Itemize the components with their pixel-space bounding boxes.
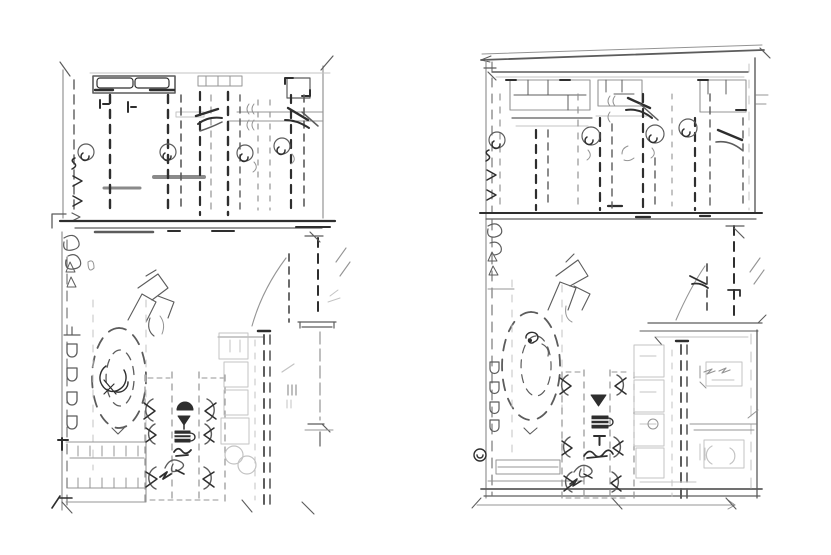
floor-plan-left bbox=[52, 56, 350, 514]
floor-plan-svg bbox=[0, 0, 831, 555]
drawing-page bbox=[0, 0, 831, 555]
floor-plan-right bbox=[472, 45, 770, 509]
